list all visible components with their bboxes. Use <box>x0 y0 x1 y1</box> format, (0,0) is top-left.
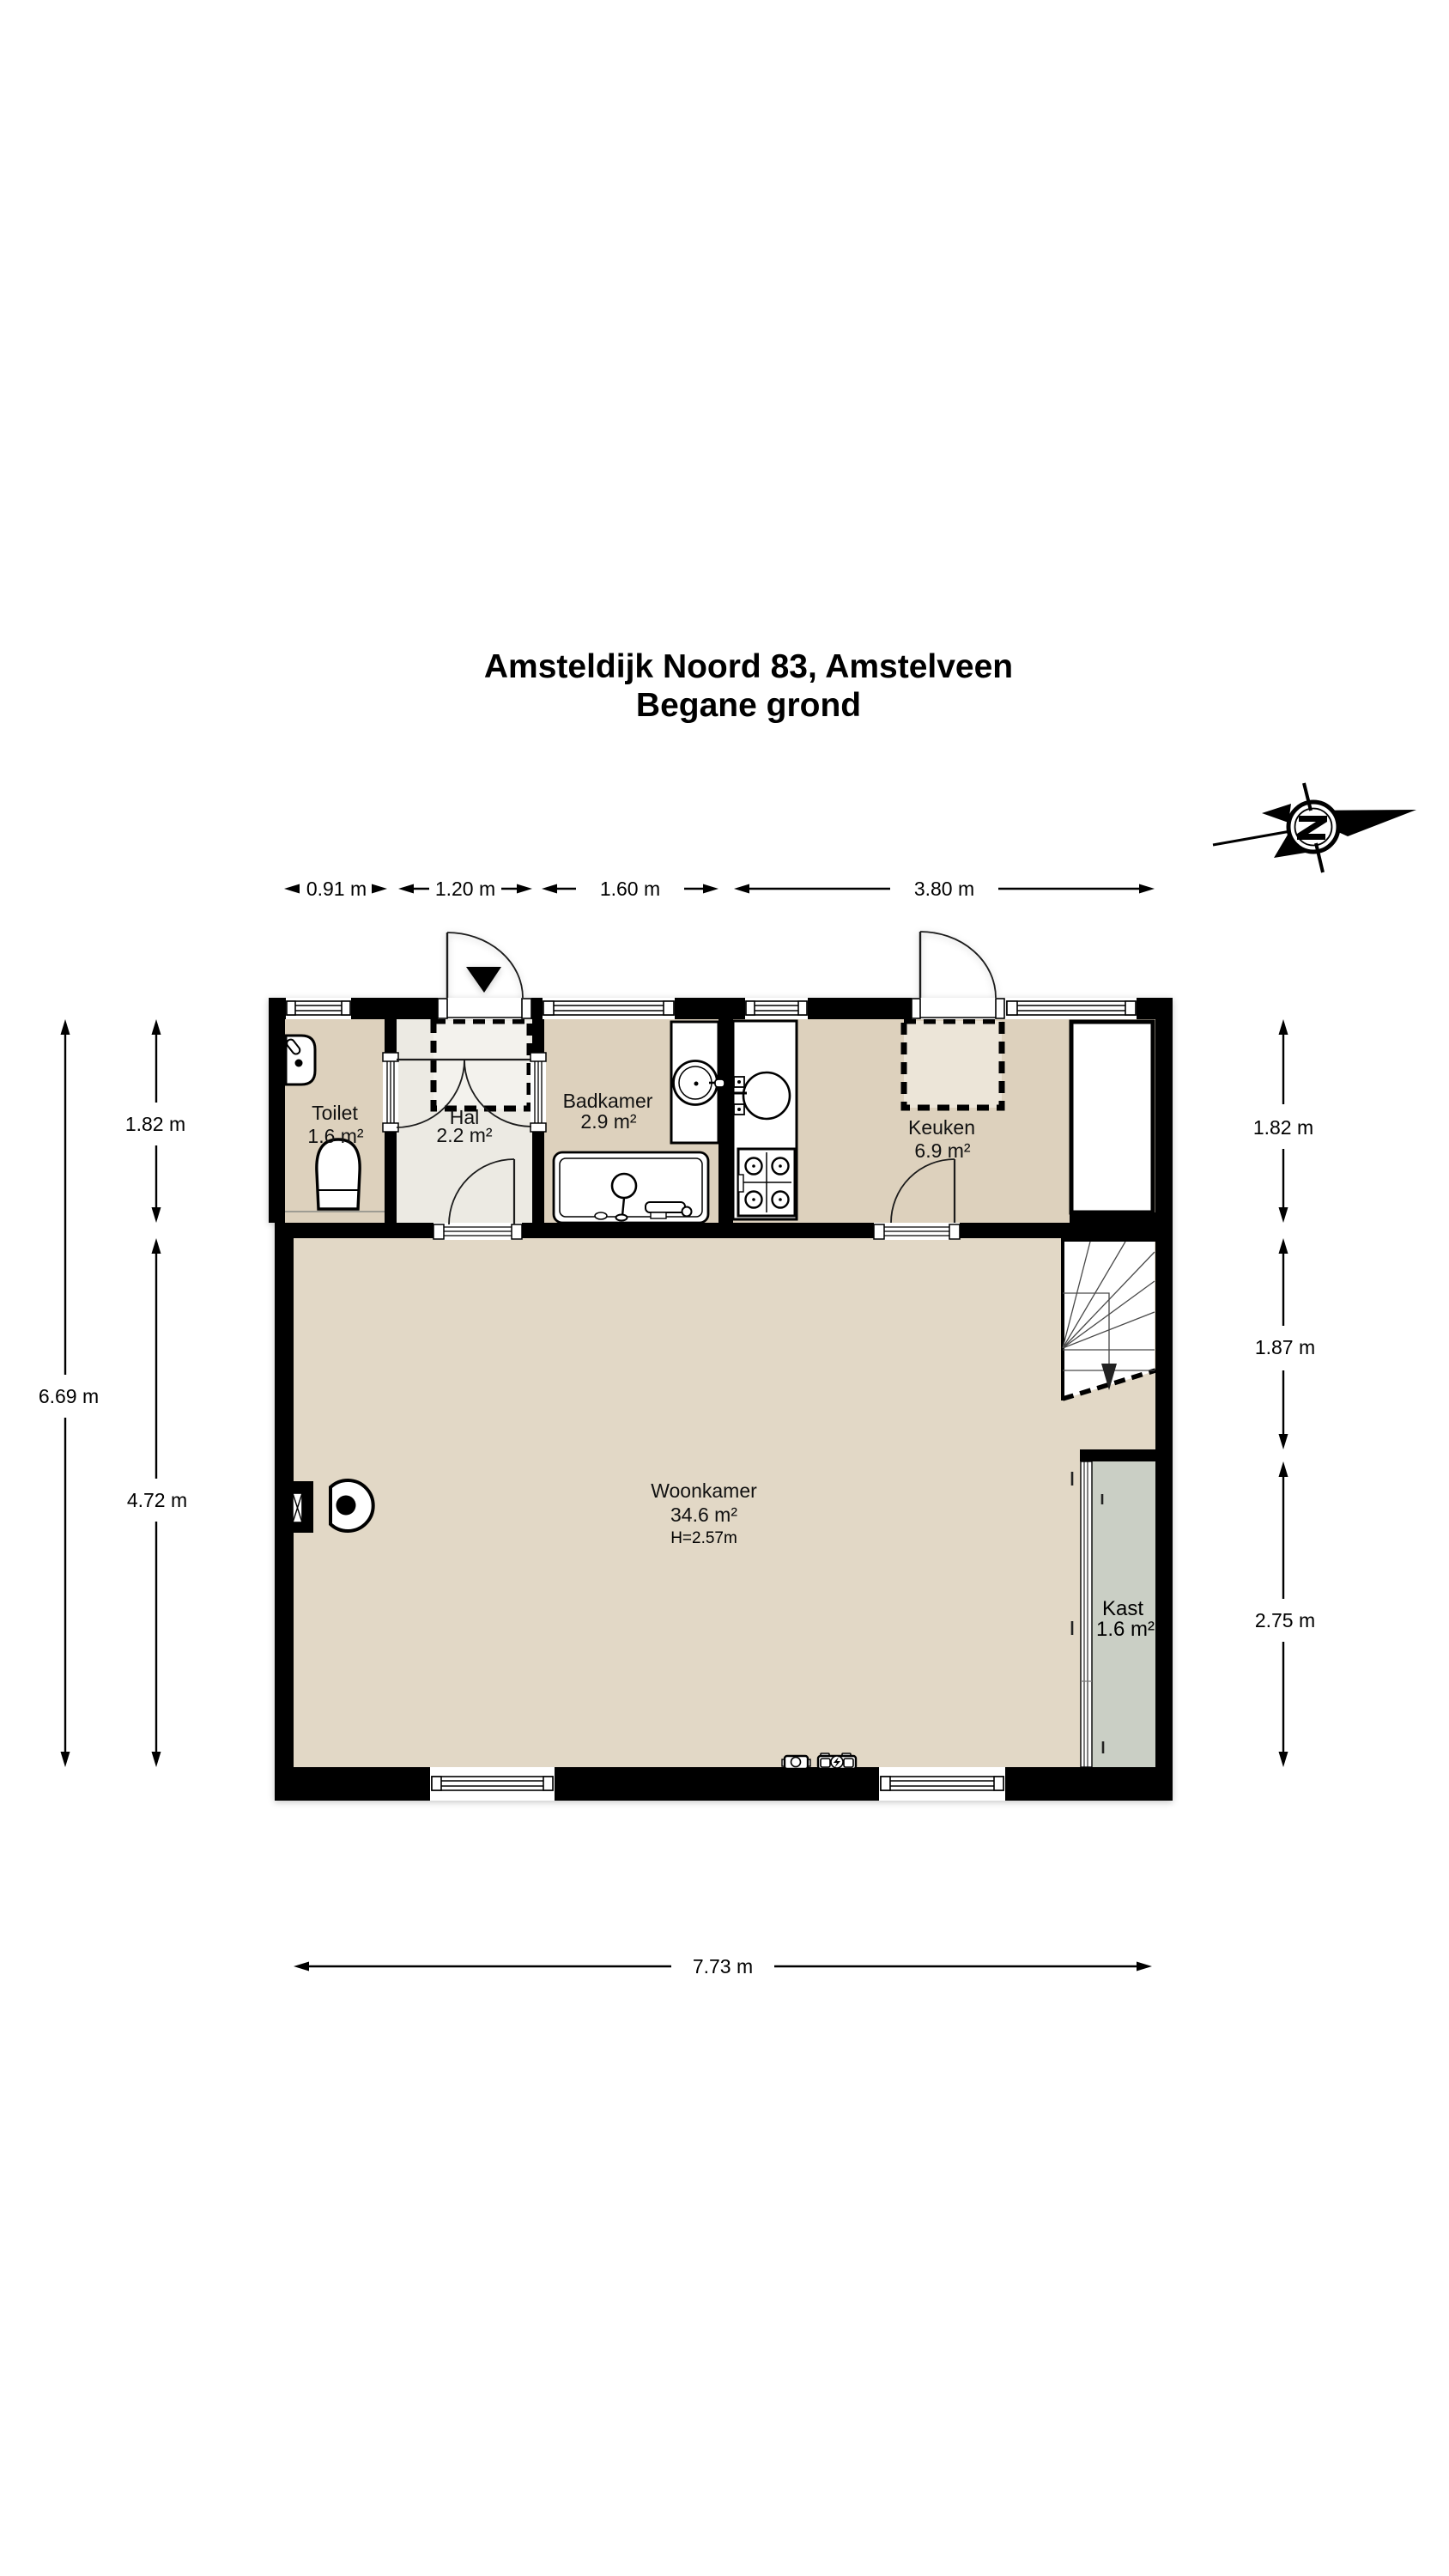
svg-text:Keuken: Keuken <box>908 1116 975 1139</box>
svg-text:0.91 m: 0.91 m <box>306 878 367 900</box>
svg-text:2.2 m²: 2.2 m² <box>436 1124 493 1146</box>
svg-text:Toilet: Toilet <box>312 1102 358 1124</box>
svg-text:1.20 m: 1.20 m <box>435 878 495 900</box>
svg-text:34.6 m²: 34.6 m² <box>670 1504 737 1526</box>
svg-text:Amsteldijk Noord 83, Amstelvee: Amsteldijk Noord 83, Amstelveen <box>484 648 1013 685</box>
svg-text:Woonkamer: Woonkamer <box>651 1479 757 1502</box>
svg-text:6.9 m²: 6.9 m² <box>914 1139 971 1162</box>
svg-text:3.80 m: 3.80 m <box>914 878 974 900</box>
svg-text:4.72 m: 4.72 m <box>127 1489 187 1511</box>
svg-text:1.87 m: 1.87 m <box>1255 1336 1315 1358</box>
svg-text:1.6 m²: 1.6 m² <box>307 1125 364 1147</box>
svg-text:1.60 m: 1.60 m <box>600 878 660 900</box>
svg-text:Badkamer: Badkamer <box>563 1090 653 1112</box>
svg-text:H=2.57m: H=2.57m <box>670 1529 737 1547</box>
svg-text:6.69 m: 6.69 m <box>39 1385 99 1407</box>
svg-text:1.82 m: 1.82 m <box>125 1113 185 1135</box>
svg-text:Begane grond: Begane grond <box>636 687 861 724</box>
svg-text:1.6 m²: 1.6 m² <box>1096 1618 1155 1641</box>
svg-text:7.73 m: 7.73 m <box>693 1955 753 1978</box>
svg-text:2.9 m²: 2.9 m² <box>580 1110 637 1133</box>
svg-text:Kast: Kast <box>1102 1597 1143 1620</box>
svg-text:1.82 m: 1.82 m <box>1253 1116 1313 1139</box>
svg-text:2.75 m: 2.75 m <box>1255 1609 1315 1631</box>
